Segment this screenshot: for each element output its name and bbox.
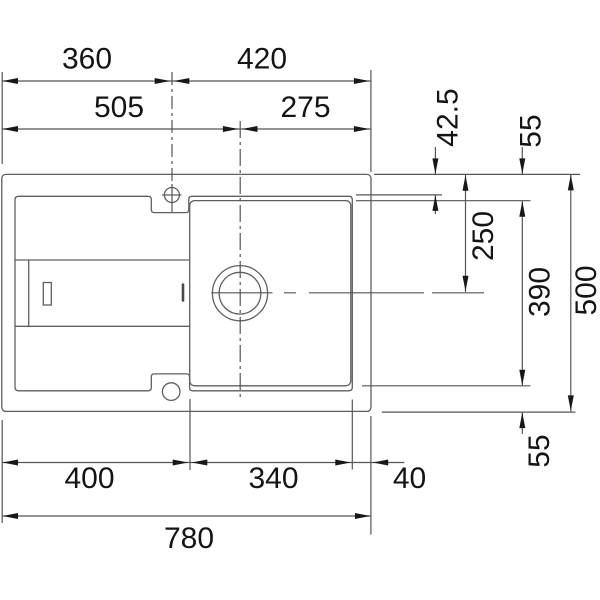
svg-text:40: 40 <box>393 462 426 495</box>
svg-text:55: 55 <box>523 434 556 467</box>
svg-text:360: 360 <box>62 42 112 75</box>
svg-text:275: 275 <box>280 91 330 124</box>
svg-text:55: 55 <box>515 114 548 147</box>
svg-text:400: 400 <box>64 462 114 495</box>
svg-text:390: 390 <box>524 267 557 317</box>
svg-text:780: 780 <box>164 522 214 555</box>
svg-text:42.5: 42.5 <box>432 88 465 146</box>
svg-text:505: 505 <box>94 91 144 124</box>
svg-text:420: 420 <box>237 42 287 75</box>
svg-text:500: 500 <box>570 265 600 315</box>
svg-text:340: 340 <box>248 462 298 495</box>
svg-text:250: 250 <box>467 211 500 261</box>
